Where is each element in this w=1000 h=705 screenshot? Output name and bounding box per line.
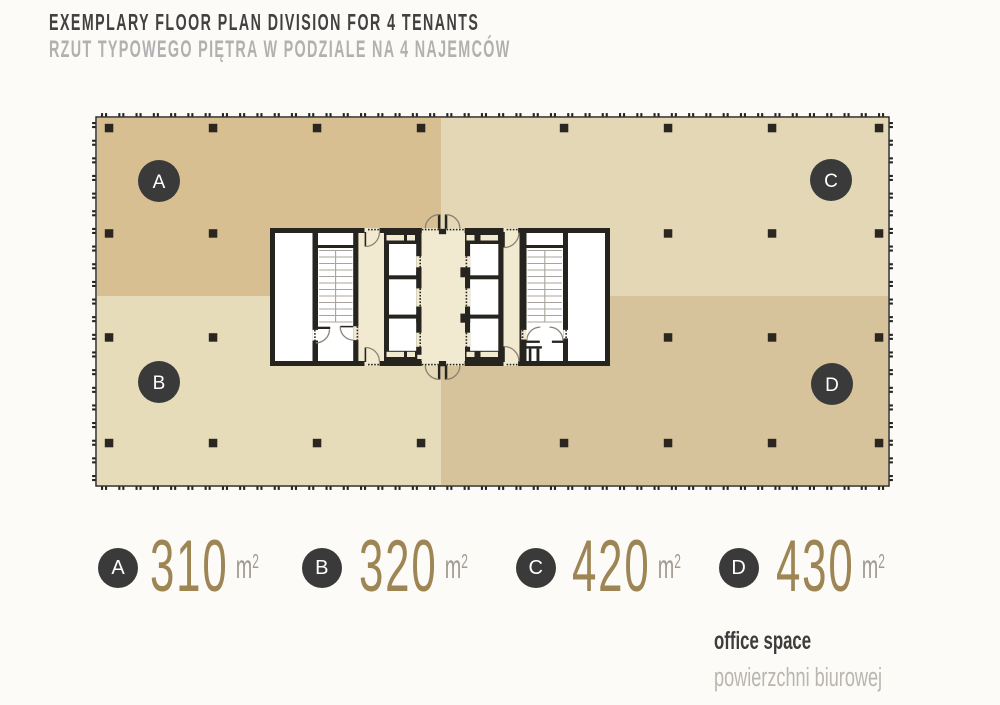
svg-text:C: C xyxy=(824,171,838,192)
svg-text:A: A xyxy=(153,172,166,193)
svg-text:D: D xyxy=(825,375,839,396)
svg-text:B: B xyxy=(153,373,166,394)
